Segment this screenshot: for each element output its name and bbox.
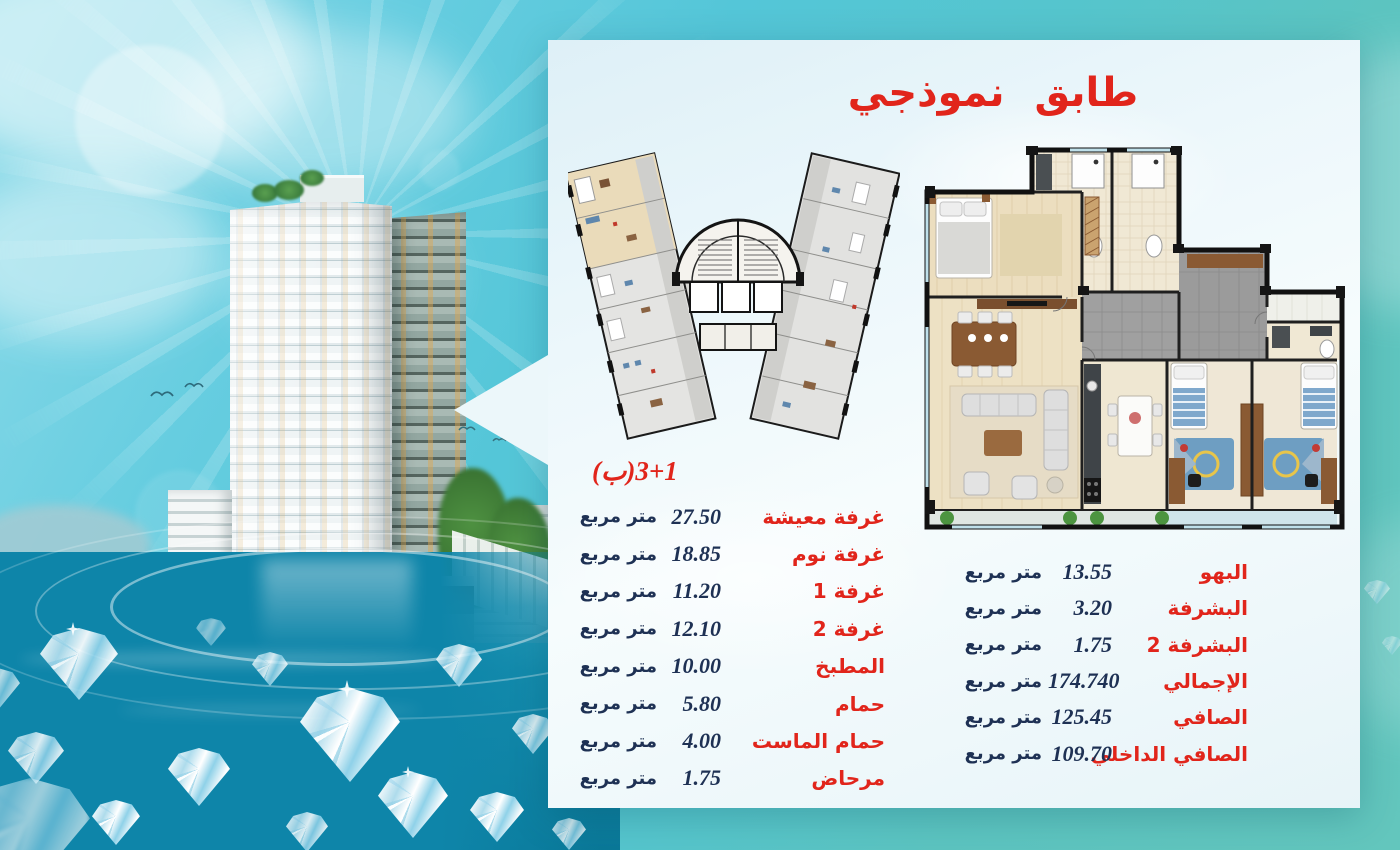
room-area-value: 13.55 xyxy=(1048,559,1112,585)
toilet xyxy=(1320,340,1334,358)
room-name: غرفة 1 xyxy=(727,579,885,603)
area-row: الصافي الداخلي 109.70 متر مربع xyxy=(964,735,1248,771)
room-area-value: 5.80 xyxy=(663,691,721,717)
room-area-value: 3.20 xyxy=(1048,595,1112,621)
plant xyxy=(940,511,954,525)
plant xyxy=(1063,511,1077,525)
room-kitchen xyxy=(1082,360,1167,510)
typical-floor-plan xyxy=(568,148,900,460)
room-bathroom-2 xyxy=(1267,322,1342,360)
room-area-unit: متر مربع xyxy=(583,618,657,639)
room-area-value: 174.740 xyxy=(1048,668,1112,694)
kitchen-table xyxy=(1118,396,1152,456)
room-area-value: 1.75 xyxy=(1048,632,1112,658)
area-table-left: غرفة معيشة 27.50 متر مربع غرفة نوم 18.85… xyxy=(583,498,885,797)
area-row: البشرفة 3.20 متر مربع xyxy=(964,590,1248,626)
desk xyxy=(1321,458,1337,504)
shower xyxy=(1072,154,1104,188)
desk-chair xyxy=(1188,474,1201,487)
apartment-floor-plan xyxy=(922,142,1346,534)
room-area-value: 125.45 xyxy=(1048,704,1112,730)
page-title: طابق نموذجي xyxy=(838,70,1148,116)
room-area-unit: متر مربع xyxy=(964,707,1042,728)
area-row: غرفة معيشة 27.50 متر مربع xyxy=(583,498,885,535)
desk-chair xyxy=(1305,474,1318,487)
area-row: غرفة نوم 18.85 متر مربع xyxy=(583,535,885,572)
area-row: الصافي 125.45 متر مربع xyxy=(964,699,1248,735)
room-name: البشرفة xyxy=(1118,596,1248,620)
balcony xyxy=(927,510,1337,527)
room-area-value: 109.70 xyxy=(1048,741,1112,767)
panel-pointer xyxy=(454,355,548,465)
room-area-value: 12.10 xyxy=(663,616,721,642)
unit-type-label: 3+1(ب) xyxy=(592,456,678,487)
area-row: مرحاض 1.75 متر مربع xyxy=(583,760,885,797)
room-area-value: 11.20 xyxy=(663,578,721,604)
area-row: غرفة 1 11.20 متر مربع xyxy=(583,573,885,610)
sink xyxy=(1310,326,1332,336)
room-living-dining xyxy=(927,297,1082,510)
plant xyxy=(1155,511,1169,525)
room-area-unit: متر مربع xyxy=(583,506,657,527)
coffee-table xyxy=(984,430,1022,456)
bird-icon xyxy=(150,388,174,398)
corridor-marble xyxy=(1267,292,1342,322)
lower-lobby xyxy=(700,324,776,350)
shower xyxy=(1132,154,1164,188)
room-name: غرفة معيشة xyxy=(727,505,885,529)
info-panel: طابق نموذجي xyxy=(548,40,1360,808)
room-name: البهو xyxy=(1118,560,1248,584)
room-name: البشرفة 2 xyxy=(1118,633,1248,657)
bed xyxy=(1301,363,1337,429)
room-area-unit: متر مربع xyxy=(583,581,657,602)
room-name: غرفة نوم xyxy=(727,542,885,566)
room-kid-bedroom-1 xyxy=(1167,360,1252,510)
toilet xyxy=(1146,235,1162,257)
area-row: البشرفة 2 1.75 متر مربع xyxy=(964,627,1248,663)
room-area-unit: متر مربع xyxy=(583,768,657,789)
room-area-unit: متر مربع xyxy=(583,656,657,677)
cloud xyxy=(0,170,220,340)
bokeh-circle xyxy=(420,150,460,190)
room-area-unit: متر مربع xyxy=(583,731,657,752)
roof-garden xyxy=(274,180,304,200)
room-area-unit: متر مربع xyxy=(964,598,1042,619)
area-row: المطبخ 10.00 متر مربع xyxy=(583,648,885,685)
roof-garden xyxy=(300,170,324,186)
plant xyxy=(1090,511,1104,525)
room-name: مرحاض xyxy=(727,766,885,790)
rug xyxy=(1000,214,1062,276)
room-area-value: 18.85 xyxy=(663,541,721,567)
area-row: غرفة 2 12.10 متر مربع xyxy=(583,610,885,647)
area-row: البهو 13.55 متر مربع xyxy=(964,554,1248,590)
vanity xyxy=(1036,154,1052,190)
room-area-unit: متر مربع xyxy=(583,693,657,714)
room-area-unit: متر مربع xyxy=(964,634,1042,655)
elevators xyxy=(690,282,782,312)
room-name: حمام الماست xyxy=(727,729,885,753)
washer xyxy=(1272,326,1290,348)
room-area-value: 10.00 xyxy=(663,653,721,679)
room-name: الصافي xyxy=(1118,705,1248,729)
room-name: الإجمالي xyxy=(1118,669,1248,693)
entry-closet xyxy=(1187,254,1263,268)
desk xyxy=(1169,458,1185,504)
room-area-value: 4.00 xyxy=(663,728,721,754)
area-row: حمام 5.80 متر مربع xyxy=(583,685,885,722)
area-table-right: البهو 13.55 متر مربع البشرفة 3.20 متر مر… xyxy=(964,554,1248,772)
dining-set xyxy=(952,312,1016,377)
bokeh-circle xyxy=(75,45,225,195)
room-name: المطبخ xyxy=(727,654,885,678)
room-name: غرفة 2 xyxy=(727,617,885,641)
area-row: الإجمالي 174.740 متر مربع xyxy=(964,663,1248,699)
room-area-unit: متر مربع xyxy=(964,671,1042,692)
room-master-bedroom xyxy=(927,192,1082,297)
room-area-value: 27.50 xyxy=(663,504,721,530)
flyer-root: طابق نموذجي xyxy=(0,0,1400,850)
area-row: حمام الماست 4.00 متر مربع xyxy=(583,722,885,759)
room-area-unit: متر مربع xyxy=(964,562,1042,583)
room-kid-bedroom-2 xyxy=(1241,360,1337,510)
stove xyxy=(1084,478,1101,502)
room-area-value: 1.75 xyxy=(663,765,721,791)
room-area-unit: متر مربع xyxy=(583,544,657,565)
closet-hatch xyxy=(1085,197,1099,255)
room-name: حمام xyxy=(727,692,885,716)
room-name: الصافي الداخلي xyxy=(1118,742,1248,766)
bird-icon xyxy=(184,380,204,389)
bed xyxy=(1171,363,1207,429)
room-area-unit: متر مربع xyxy=(964,743,1042,764)
